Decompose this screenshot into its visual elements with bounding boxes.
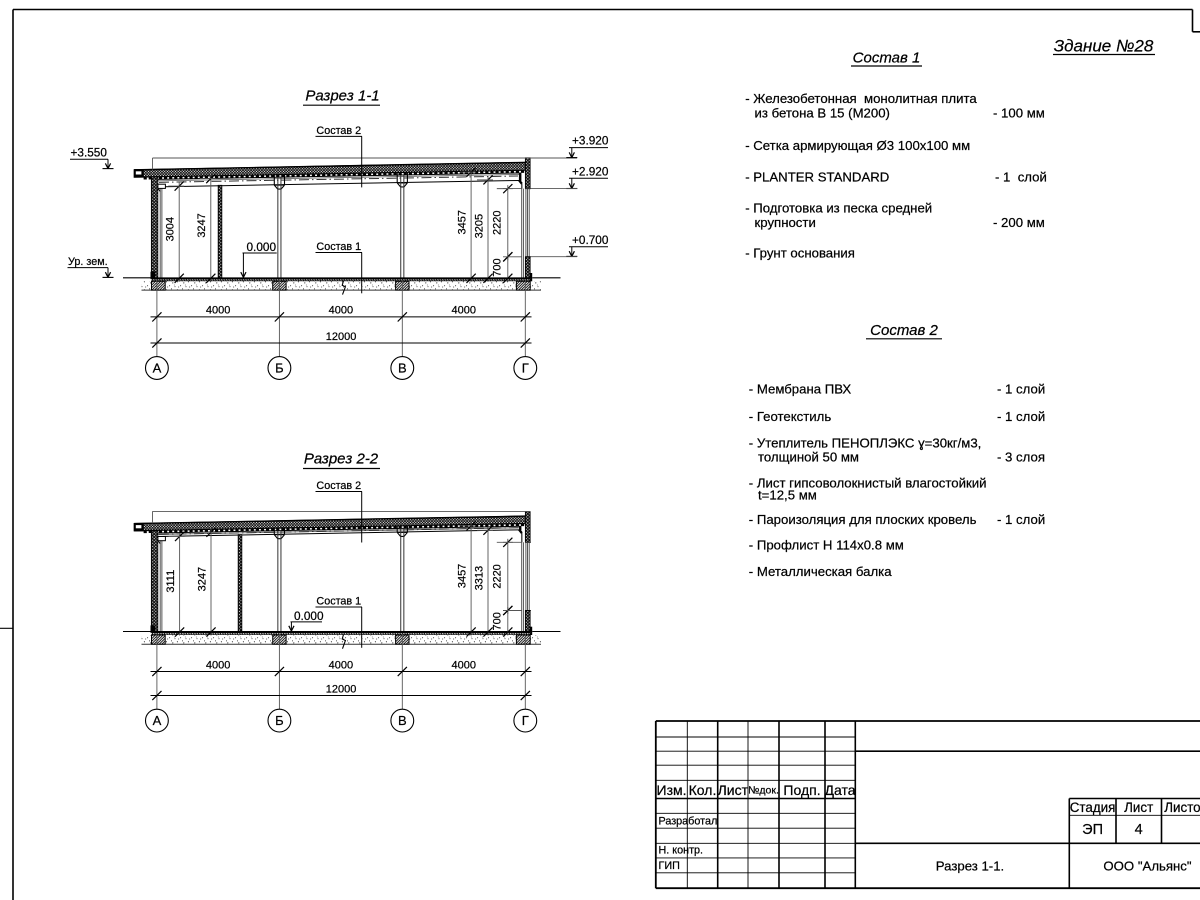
svg-text:Разрез 2-2: Разрез 2-2 [304,451,379,468]
svg-text:Разрез 1-1.: Разрез 1-1. [936,859,1004,874]
svg-text:- 1 слой: - 1 слой [997,512,1045,527]
svg-text:+3.550: +3.550 [71,146,108,160]
svg-text:крупности: крупности [755,215,816,230]
svg-text:Состав 2: Состав 2 [316,480,361,492]
svg-text:4000: 4000 [452,305,476,317]
svg-text:12000: 12000 [326,331,357,343]
svg-text:Состав 1: Состав 1 [853,50,921,67]
svg-text:3457: 3457 [457,564,469,588]
svg-text:Состав 2: Состав 2 [316,125,361,137]
svg-text:- PLANTER STANDARD: - PLANTER STANDARD [745,170,889,185]
svg-text:3457: 3457 [457,210,469,234]
svg-text:4000: 4000 [452,659,476,671]
svg-text:Состав 1: Состав 1 [316,595,361,607]
svg-text:+0.700: +0.700 [572,233,609,247]
svg-text:Б: Б [275,361,284,376]
svg-text:- Металлическая балка: - Металлическая балка [749,564,892,579]
svg-text:Состав 1: Состав 1 [316,241,361,253]
svg-text:толщиной 50 мм: толщиной 50 мм [758,450,859,465]
svg-text:Разрез 1-1: Разрез 1-1 [305,88,379,105]
svg-text:Состав 2: Состав 2 [870,322,938,339]
svg-text:- 1 слой: - 1 слой [997,409,1045,424]
svg-text:Стадия: Стадия [1070,800,1116,815]
svg-text:- Утеплитель ПЕНОПЛЭКС ɣ=30кг/: - Утеплитель ПЕНОПЛЭКС ɣ=30кг/м3, [749,436,982,451]
svg-text:12000: 12000 [326,683,357,695]
svg-text:+3.920: +3.920 [572,134,609,148]
svg-text:t=12,5 мм: t=12,5 мм [758,488,817,503]
svg-text:- 3 слоя: - 3 слоя [997,450,1045,465]
svg-text:ООО "Альянс": ООО "Альянс" [1103,859,1191,874]
svg-text:Листов: Листов [1164,800,1200,815]
svg-text:- 200 мм: - 200 мм [993,215,1045,230]
svg-text:Дата: Дата [824,782,855,798]
svg-text:ГИП: ГИП [659,860,680,872]
svg-text:2220: 2220 [492,210,504,234]
svg-text:Изм.: Изм. [657,782,687,798]
svg-text:Ур. зем.: Ур. зем. [68,256,108,268]
svg-text:3111: 3111 [165,570,177,593]
svg-text:- Подготовка из песка средней: - Подготовка из песка средней [745,200,932,215]
svg-text:Г: Г [522,361,529,376]
svg-text:В: В [398,713,407,728]
svg-text:- 1 слой: - 1 слой [997,382,1045,397]
svg-text:из бетона В 15 (М200): из бетона В 15 (М200) [755,106,890,121]
svg-text:4000: 4000 [329,305,353,317]
svg-text:+2.920: +2.920 [572,164,609,178]
svg-text:Лист: Лист [718,782,749,798]
svg-text:3205: 3205 [473,214,485,238]
svg-text:4000: 4000 [206,305,230,317]
svg-text:700: 700 [492,258,504,276]
svg-text:2220: 2220 [492,564,504,588]
svg-text:- Пароизоляция для плоских кро: - Пароизоляция для плоских кровель [749,512,977,527]
svg-text:Здание №28: Здание №28 [1054,37,1154,56]
svg-text:- Железобетонная монолитная п: - Железобетонная монолитная плита [745,91,977,106]
svg-text:0.000: 0.000 [294,609,324,623]
svg-text:А: А [153,713,162,728]
svg-text:- 100 мм: - 100 мм [993,106,1045,121]
svg-text:4: 4 [1135,822,1143,838]
svg-text:4000: 4000 [329,659,353,671]
svg-text:Разработал: Разработал [659,815,718,827]
svg-text:№док.: №док. [748,785,779,797]
svg-text:700: 700 [492,612,504,630]
svg-text:3247: 3247 [196,567,208,591]
svg-text:Б: Б [275,713,284,728]
svg-text:3004: 3004 [165,217,177,241]
svg-text:- Сетка армирующая Ø3 100х100: - Сетка армирующая Ø3 100х100 мм [745,138,970,153]
svg-text:Н. контр.: Н. контр. [659,844,704,856]
svg-text:- 1 слой: - 1 слой [995,170,1047,185]
svg-text:В: В [398,361,407,376]
svg-text:0.000: 0.000 [247,240,277,254]
svg-text:ЭП: ЭП [1082,822,1103,838]
svg-text:Подп.: Подп. [783,782,820,798]
svg-text:Кол.: Кол. [689,782,717,798]
svg-text:Г: Г [522,713,529,728]
svg-text:А: А [153,361,162,376]
svg-text:Лист: Лист [1124,800,1153,815]
svg-text:- Профлист Н 114х0.8 мм: - Профлист Н 114х0.8 мм [749,538,904,553]
svg-text:4000: 4000 [206,659,230,671]
svg-text:- Грунт основания: - Грунт основания [745,245,855,260]
svg-text:- Геотекстиль: - Геотекстиль [749,409,832,424]
svg-text:- Мембрана ПВХ: - Мембрана ПВХ [749,382,852,397]
svg-text:3247: 3247 [196,213,208,237]
svg-text:3313: 3313 [473,566,485,590]
